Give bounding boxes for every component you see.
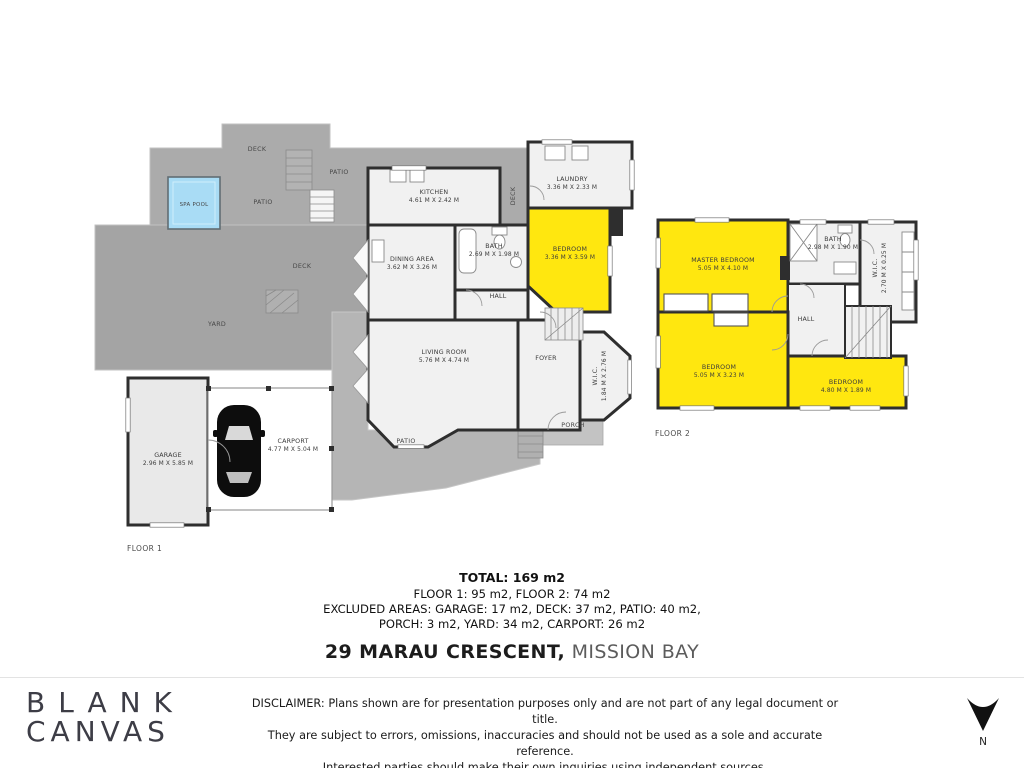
kitchen-stove <box>390 170 406 182</box>
washer <box>572 146 588 160</box>
property-address: 29 MARAU CRESCENT, MISSION BAY <box>0 641 1024 663</box>
floor1-label: FLOOR 1 <box>127 544 162 553</box>
patio-bottom-label: PATIO <box>396 438 415 445</box>
wic1-dims: 1.84 M X 2.76 M <box>602 351 608 401</box>
wall-chunk <box>780 256 790 280</box>
bathtub <box>459 229 476 273</box>
foyer-label: FOYER <box>535 355 557 362</box>
deck-top-label: DECK <box>248 146 267 153</box>
logo-line-2: CANVAS <box>26 717 185 746</box>
garage-dims: 2.96 M X 5.85 M <box>143 461 193 467</box>
bedroom1-dims: 3.36 M X 3.59 M <box>545 255 595 261</box>
garage-name: GARAGE <box>154 452 182 459</box>
stairs-foyer <box>545 308 583 340</box>
bath-sink <box>511 257 522 268</box>
carport-dims: 4.77 M X 5.04 M <box>268 447 318 453</box>
bath2-dims: 2.98 M X 1.90 M <box>808 245 858 251</box>
north-arrow-icon: N <box>967 698 999 748</box>
hall2-label: HALL <box>798 316 815 323</box>
living-name: LIVING ROOM <box>421 349 466 356</box>
master-dims: 5.05 M X 4.10 M <box>698 266 748 272</box>
room-dining <box>368 225 455 320</box>
kitchen-sink <box>410 170 424 182</box>
stairs-deck-upper <box>286 150 312 190</box>
stairs-floor2 <box>845 306 891 358</box>
room-living <box>368 320 518 447</box>
bath2-name: BATH <box>824 236 842 243</box>
kitchen-dims: 4.61 M X 2.42 M <box>409 198 459 204</box>
yard-label: YARD <box>207 321 226 328</box>
bedroom3-dims: 4.80 M X 1.89 M <box>821 388 871 394</box>
bath1-dims: 2.69 M X 1.98 M <box>469 252 519 258</box>
bedroom2-dims: 5.05 M X 3.23 M <box>694 373 744 379</box>
laundry-dims: 3.36 M X 2.33 M <box>547 185 597 191</box>
porch-label: PORCH <box>561 422 584 429</box>
north-label: N <box>979 736 987 748</box>
wic2-dims: 2.70 M X 0.25 M <box>882 243 888 293</box>
car-icon <box>213 405 265 497</box>
toilet-tank <box>838 225 852 233</box>
spa-pool-label: SPA POOL <box>180 202 209 208</box>
bedroom2-name: BEDROOM <box>702 364 736 371</box>
disclaimer-line-2: They are subject to errors, omissions, i… <box>240 728 850 760</box>
shower <box>790 224 817 261</box>
wic1-name: W.I.C. <box>592 367 599 386</box>
excluded-areas-1: EXCLUDED AREAS: GARAGE: 17 m2, DECK: 37 … <box>0 602 1024 617</box>
vanity <box>834 262 856 274</box>
dining-name: DINING AREA <box>390 256 435 263</box>
deck-strip-label: DECK <box>510 186 517 205</box>
patio-top-label: PATIO <box>329 169 348 176</box>
wall-chunk <box>610 209 623 236</box>
bedroom1-name: BEDROOM <box>553 246 587 253</box>
room-kitchen <box>368 168 500 225</box>
room-hall2 <box>788 284 845 358</box>
total-area: TOTAL: 169 m2 <box>0 570 1024 585</box>
patio-mid-label: PATIO <box>253 199 272 206</box>
carport-name: CARPORT <box>278 438 309 445</box>
floor2-label: FLOOR 2 <box>655 429 690 438</box>
address-street: 29 MARAU CRESCENT, <box>325 641 565 663</box>
hall1-label: HALL <box>490 293 507 300</box>
footer-divider <box>0 677 1024 678</box>
area-summary: TOTAL: 169 m2 FLOOR 1: 95 m2, FLOOR 2: 7… <box>0 570 1024 631</box>
stairs-deck-lower <box>310 190 334 222</box>
disclaimer-line-1: DISCLAIMER: Plans shown are for presenta… <box>240 696 850 728</box>
toilet-tank <box>492 227 507 235</box>
floor-areas: FLOOR 1: 95 m2, FLOOR 2: 74 m2 <box>0 587 1024 602</box>
kitchen-counter <box>372 240 384 262</box>
master-name: MASTER BEDROOM <box>691 257 755 264</box>
disclaimer-line-3: Interested parties should make their own… <box>240 760 850 768</box>
wic-shelves <box>902 232 914 310</box>
logo-line-1: BLANK <box>26 688 185 717</box>
disclaimer: DISCLAIMER: Plans shown are for presenta… <box>240 696 850 768</box>
deck-hatch-feature <box>266 290 298 313</box>
floor2-plan: MASTER BEDROOM 5.05 M X 4.10 M BATH 2.98… <box>655 218 918 438</box>
wic2-name: W.I.C. <box>872 259 879 278</box>
laundry-name: LAUNDRY <box>556 176 587 183</box>
floor1-plan: SPA POOL <box>95 124 634 553</box>
bath1-name: BATH <box>485 243 503 250</box>
laundry-tub <box>545 146 565 160</box>
address-suburb: MISSION BAY <box>572 641 700 663</box>
excluded-areas-2: PORCH: 3 m2, YARD: 34 m2, CARPORT: 26 m2 <box>0 617 1024 632</box>
deck-mid-label: DECK <box>293 263 312 270</box>
floor-plan-page: SPA POOL <box>0 0 1024 768</box>
spa-pool: SPA POOL <box>168 177 220 229</box>
bedroom3-name: BEDROOM <box>829 379 863 386</box>
kitchen-name: KITCHEN <box>420 189 449 196</box>
blank-canvas-logo: BLANK CANVAS <box>26 688 185 746</box>
dining-dims: 3.62 M X 3.26 M <box>387 265 437 271</box>
living-dims: 5.76 M X 4.74 M <box>419 358 469 364</box>
